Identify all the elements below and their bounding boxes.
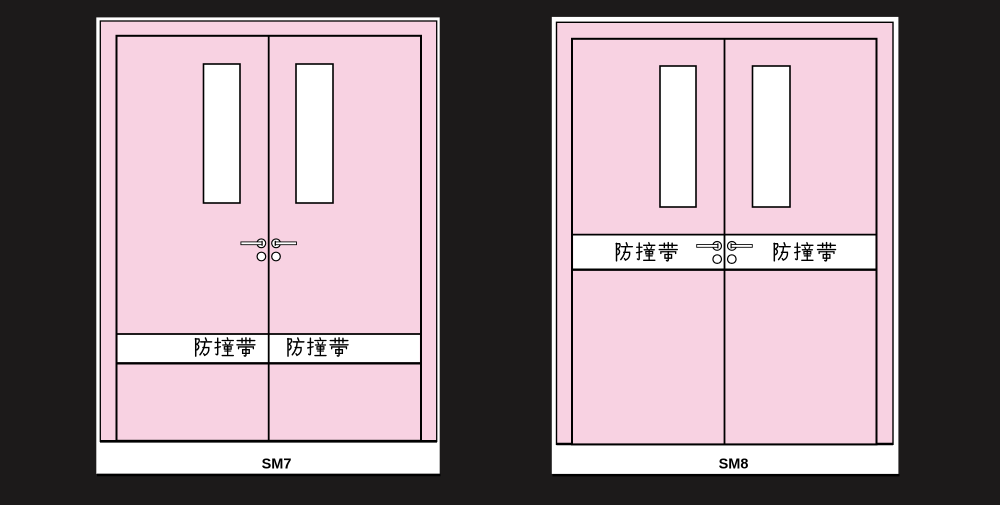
svg-text:SM8: SM8 bbox=[719, 456, 749, 472]
svg-text:SM7: SM7 bbox=[262, 456, 292, 472]
